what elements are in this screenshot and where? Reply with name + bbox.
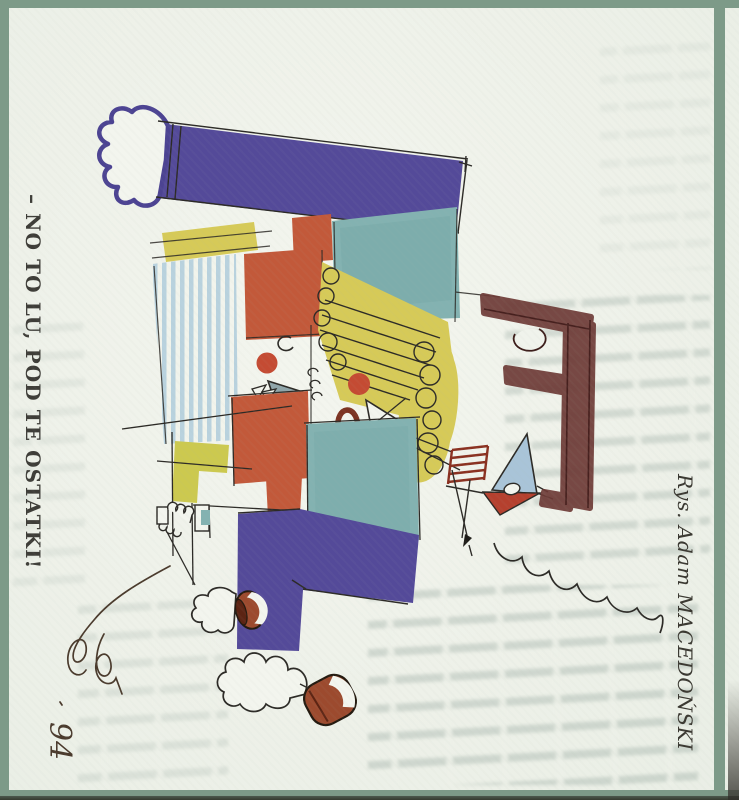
- artist-signature: 94: [42, 566, 170, 760]
- hand-scallops-lower: [159, 524, 181, 537]
- pencil-tip: [463, 534, 472, 547]
- scan-edge-shadow-right: [728, 680, 739, 800]
- caption-exclamation: – NO TO LU, POD TE OSTATKI!: [21, 194, 45, 569]
- trousers-shape: [237, 509, 419, 651]
- signature-flourish: [60, 566, 170, 705]
- caption-artist-credit: Rys. Adam MACEDOŃSKI: [673, 474, 697, 751]
- signature-year: 94: [42, 722, 77, 760]
- bird-figure: [446, 434, 553, 515]
- cloud-foot-2: [217, 653, 306, 712]
- orange-body-left: [231, 391, 310, 484]
- hand-key-teal: [201, 510, 210, 525]
- pencil-lines: [452, 470, 472, 556]
- nose-left: [257, 353, 278, 374]
- purple-trousers: [237, 509, 419, 651]
- frame-border-right: [714, 0, 725, 800]
- yellow-green-bar: [172, 441, 229, 503]
- cloud-foot-1: [192, 588, 236, 633]
- cloud-fist: [99, 107, 168, 205]
- hand-key-1: [157, 507, 168, 524]
- eyebrow-left: [278, 337, 293, 351]
- mug-2: [298, 669, 361, 731]
- wavy-scallop-line: [494, 543, 663, 633]
- music-stand: [448, 446, 488, 556]
- scanned-page: 94 – NO TO LU, POD TE OSTATKI! Rys. Adam…: [0, 0, 739, 800]
- bird-base: [483, 492, 540, 515]
- hand-scallops: [168, 502, 194, 523]
- cartoon-drawing: 94: [0, 0, 739, 800]
- frame-border-top: [0, 0, 739, 8]
- frame-border-left: [0, 0, 9, 800]
- scan-edge-shadow-bottom: [0, 796, 739, 800]
- nose-right: [348, 373, 370, 395]
